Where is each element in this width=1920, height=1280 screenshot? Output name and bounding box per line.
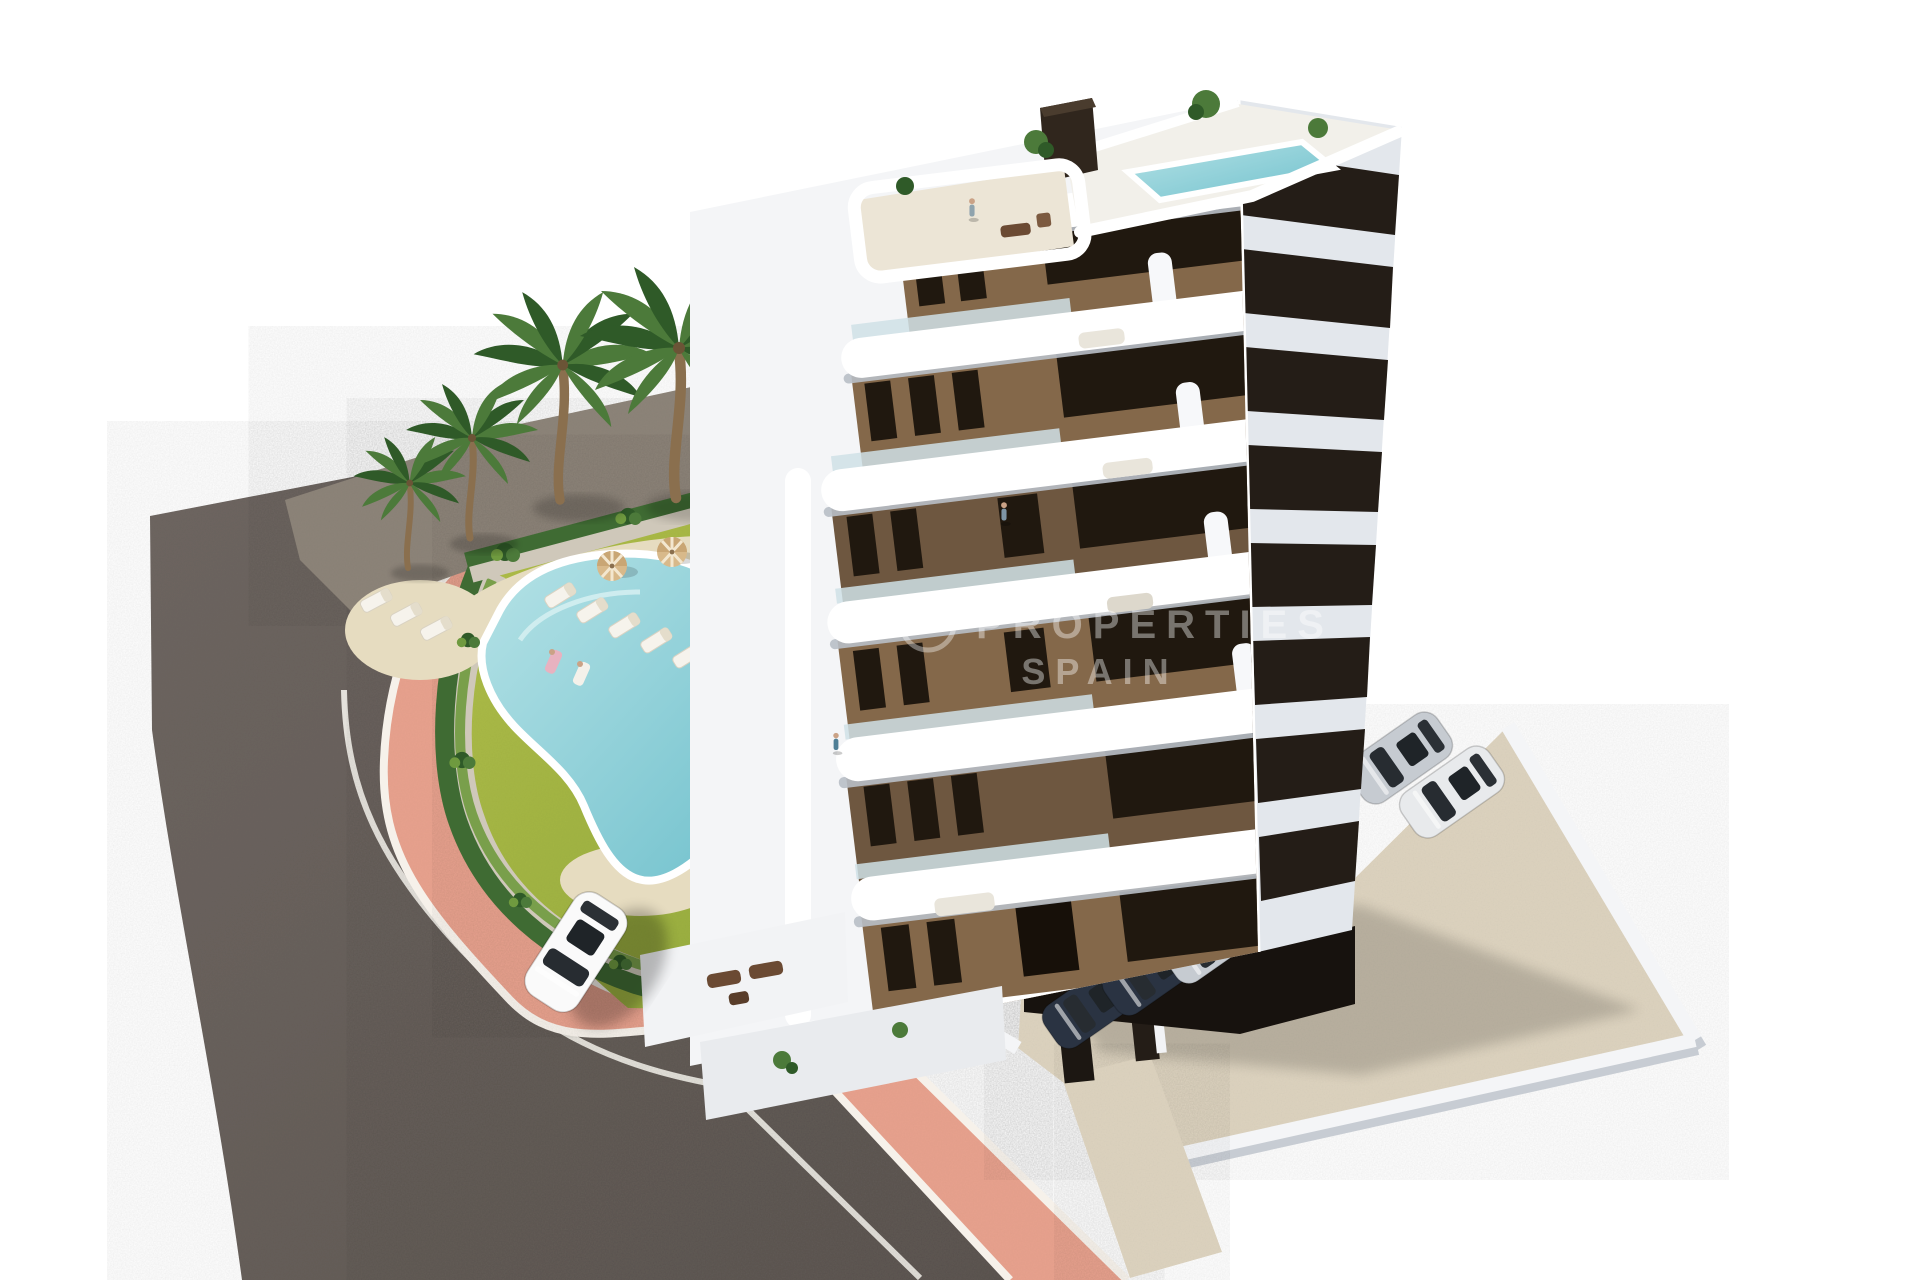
render-canvas: PROPERTIES SPAIN — [0, 0, 1920, 1280]
architectural-render-scene: PROPERTIES SPAIN — [0, 0, 1920, 1280]
watermark-line2: SPAIN — [1021, 651, 1178, 692]
watermark-line1: PROPERTIES — [976, 603, 1334, 647]
